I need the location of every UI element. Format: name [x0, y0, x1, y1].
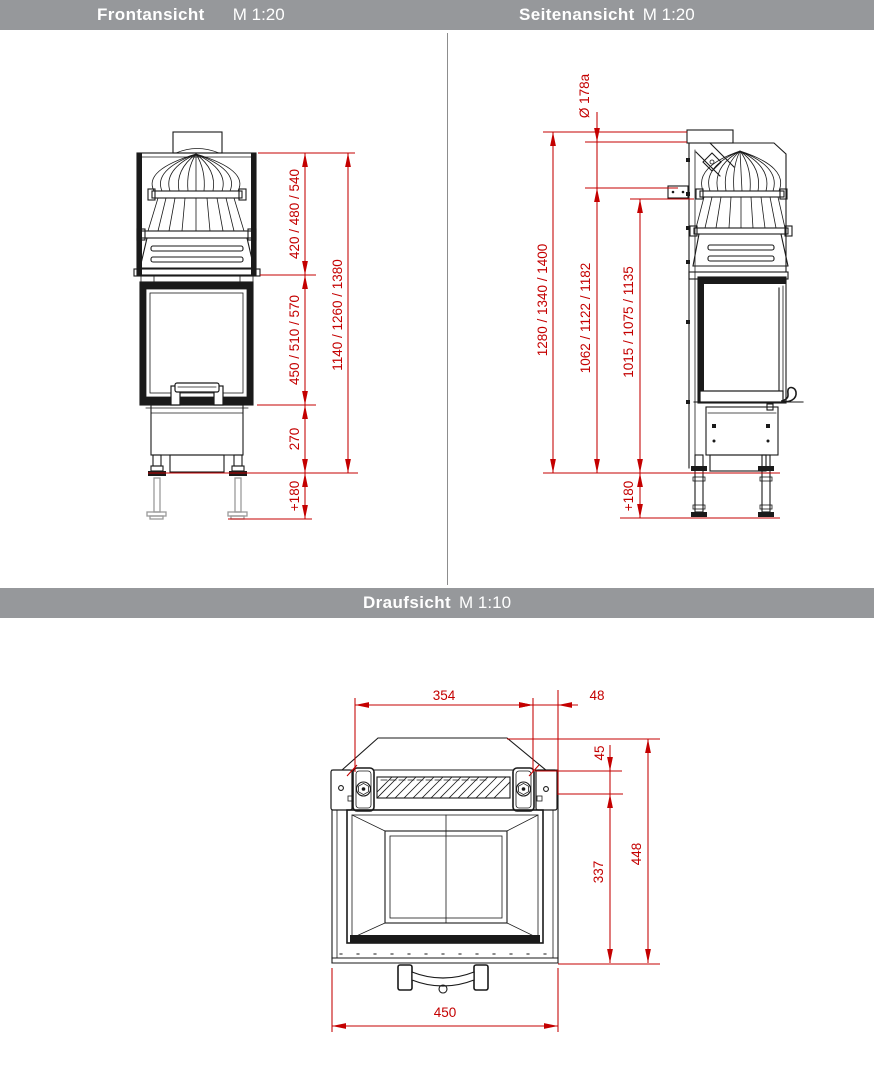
- side-view-dimensions: Ø 178a 1280 / 1340 / 1400 1062 / 1122 / …: [535, 73, 780, 518]
- side-firebox: [698, 277, 786, 403]
- dim-side-flue-axis-height: 1062 / 1122 / 1182: [578, 263, 593, 374]
- dim-top-body-depth: 337: [591, 861, 606, 884]
- top-view-drawing: 354 48 45 337 448 450: [331, 688, 660, 1032]
- side-legs: [691, 455, 774, 517]
- dim-front-leg-extension: +180: [287, 481, 302, 511]
- front-dome-ribs: [152, 154, 240, 191]
- dim-top-edge-offset: 48: [589, 688, 604, 703]
- front-view-drawing: 420 / 480 / 540 450 / 510 / 570 270 +180…: [134, 132, 358, 519]
- drawing-sheet: Frontansicht M 1:20 Seitenansicht M 1:20…: [0, 0, 874, 1089]
- front-leg-extensions: [147, 478, 247, 519]
- front-plinth: [151, 405, 243, 455]
- technical-drawing: 420 / 480 / 540 450 / 510 / 570 270 +180…: [0, 0, 874, 1089]
- dim-top-total-depth: 448: [629, 843, 644, 866]
- dim-front-plinth-height: 270: [287, 428, 302, 451]
- side-dome-ribs: [702, 151, 781, 191]
- dim-top-mounting-width: 354: [433, 688, 456, 703]
- dim-side-flue-base-height: 1015 / 1075 / 1135: [621, 266, 636, 378]
- side-plinth: [706, 407, 778, 455]
- side-vent-slot: [708, 256, 774, 261]
- top-left-bracket: [353, 768, 374, 811]
- top-door-handle: [398, 965, 488, 993]
- side-view-drawing: Ø 178a 1280 / 1340 / 1400 1062 / 1122 / …: [535, 73, 803, 518]
- top-rear-section: [342, 738, 547, 771]
- dim-front-hood-height: 420 / 480 / 540: [287, 169, 302, 259]
- dim-front-firebox-height: 450 / 510 / 570: [287, 295, 302, 385]
- front-flue-collar: [173, 132, 222, 153]
- side-door-handle: [782, 388, 796, 402]
- front-legs: [147, 455, 247, 519]
- dim-front-total-height: 1140 / 1260 / 1380: [330, 259, 345, 371]
- front-vent-slot: [151, 257, 243, 262]
- dim-side-total-height: 1280 / 1340 / 1400: [535, 244, 550, 357]
- dim-side-flue-diameter: Ø 178a: [577, 73, 592, 118]
- side-flue-collar: [687, 130, 733, 143]
- front-vent-slot: [151, 246, 243, 251]
- dim-side-leg-extension: +180: [621, 481, 636, 511]
- dim-top-total-width: 450: [434, 1005, 457, 1020]
- dim-top-bracket-depth: 45: [592, 745, 607, 760]
- top-view-dimensions: 354 48 45 337 448 450: [332, 688, 660, 1032]
- side-vent-slot: [708, 245, 774, 250]
